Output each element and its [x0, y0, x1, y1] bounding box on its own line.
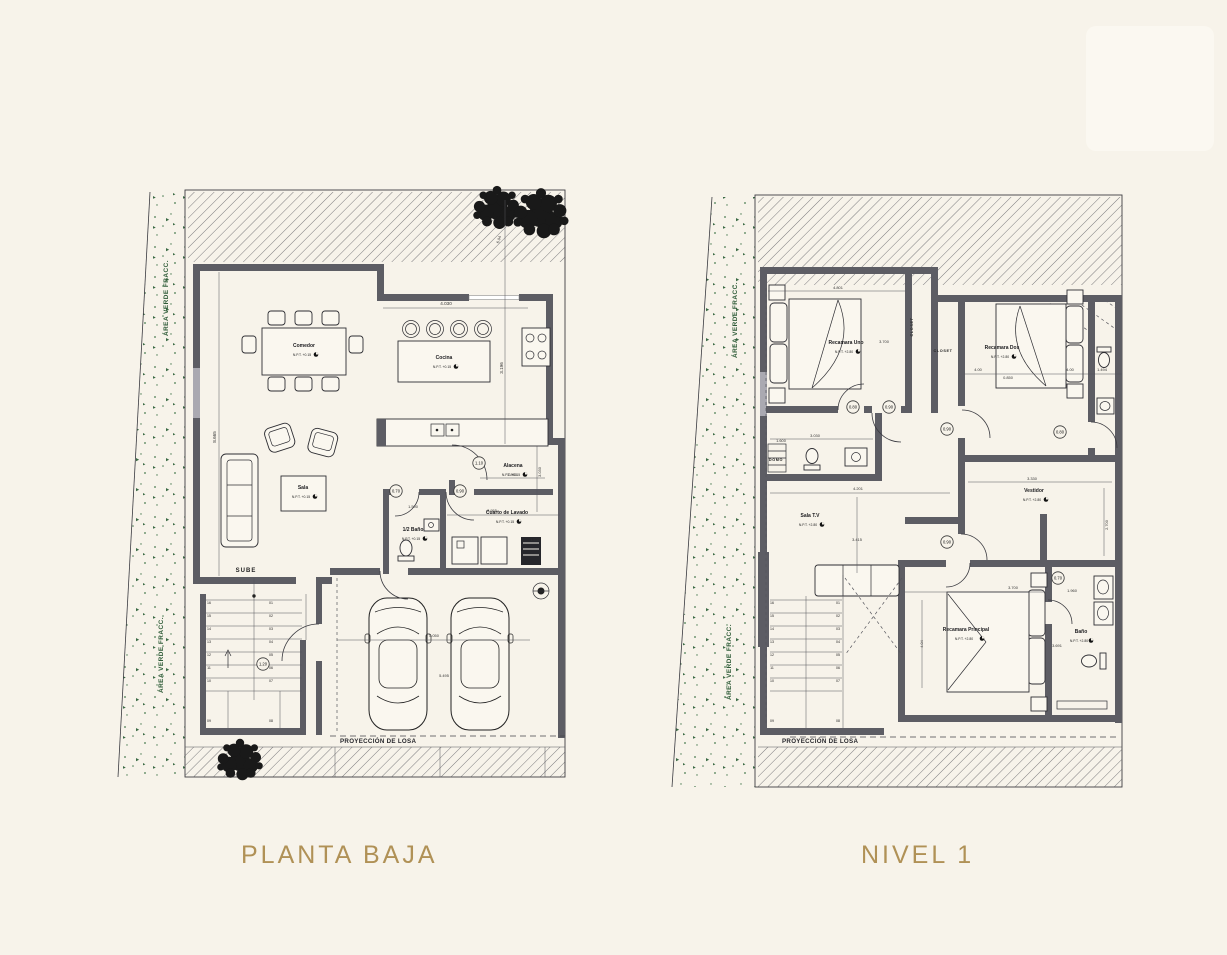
toilet	[398, 540, 414, 561]
svg-text:1.960: 1.960	[1067, 588, 1078, 593]
svg-text:16: 16	[207, 601, 211, 605]
room-label-half-bath: 1/2 Baño	[403, 527, 424, 533]
armchair	[307, 427, 340, 458]
svg-text:0.80: 0.80	[1056, 430, 1065, 435]
svg-text:0.80: 0.80	[849, 405, 858, 410]
sink	[845, 448, 867, 466]
svg-text:4.201: 4.201	[853, 486, 863, 491]
svg-text:0.90: 0.90	[456, 489, 465, 494]
sidewalk-hatch	[758, 747, 1122, 787]
window	[469, 296, 519, 300]
svg-text:10: 10	[770, 679, 774, 683]
green-area-strip: ÁREA VERDE FRACC. ÁREA VERDE FRACC.	[672, 197, 755, 787]
room-label-tv: Sala T.V	[801, 513, 821, 519]
svg-text:14: 14	[770, 627, 774, 631]
svg-text:N.P.T. +0.15: N.P.T. +0.15	[496, 520, 514, 524]
svg-text:12: 12	[770, 653, 774, 657]
washer-dryer	[452, 537, 507, 564]
plan-title-nivel-1: NIVEL 1	[861, 841, 974, 869]
door-size-tag: 0.70	[1052, 572, 1064, 584]
level-marker-icon	[314, 352, 319, 357]
svg-text:3.700: 3.700	[1008, 585, 1019, 590]
level-marker-icon	[980, 636, 985, 641]
level-marker-icon	[1089, 638, 1094, 643]
svg-text:1.600: 1.600	[776, 438, 787, 443]
svg-text:1.500: 1.500	[408, 504, 419, 509]
toilet	[1082, 653, 1107, 669]
room-label-kitchen: Cocina	[436, 355, 453, 361]
svg-text:12: 12	[207, 653, 211, 657]
svg-text:15: 15	[207, 614, 211, 618]
svg-text:15: 15	[770, 614, 774, 618]
car	[447, 598, 513, 730]
room-label-skylight: DOMO	[769, 458, 783, 462]
svg-text:3.691: 3.691	[1052, 643, 1062, 648]
svg-text:04: 04	[269, 640, 273, 644]
svg-text:1.10: 1.10	[475, 461, 484, 466]
sink	[1097, 398, 1114, 414]
svg-text:N.P.T. +2.80: N.P.T. +2.80	[991, 355, 1009, 359]
svg-text:2.700: 2.700	[1104, 519, 1109, 530]
svg-text:N.P.T. +2.80: N.P.T. +2.80	[799, 523, 817, 527]
room-label-master: Recamara Principal	[943, 627, 990, 633]
level-marker-icon	[856, 349, 861, 354]
svg-text:13: 13	[207, 640, 211, 644]
svg-text:N.P.T. +2.80: N.P.T. +2.80	[1070, 639, 1088, 643]
level-marker-icon	[313, 494, 318, 499]
svg-text:N.P.T. +0.15: N.P.T. +0.15	[502, 473, 520, 477]
site-label: ÁREA VERDE FRACC.	[156, 617, 165, 693]
svg-text:3.196: 3.196	[499, 362, 504, 374]
level-marker-icon	[1012, 354, 1017, 359]
staircase: SUBE 16151413121110 01020304050607 0908	[206, 568, 306, 728]
svg-text:11: 11	[207, 666, 211, 670]
svg-text:0.90: 0.90	[943, 427, 952, 432]
svg-text:07: 07	[269, 679, 273, 683]
floor-drain-icon	[533, 583, 549, 599]
dining-set	[242, 311, 363, 391]
svg-text:09: 09	[207, 719, 211, 723]
double-sink	[1094, 576, 1113, 625]
svg-text:N.P.T. +2.80: N.P.T. +2.80	[955, 637, 973, 641]
svg-text:10: 10	[207, 679, 211, 683]
svg-text:N.P.T. +2.80: N.P.T. +2.80	[835, 350, 853, 354]
watermark	[1086, 26, 1214, 151]
svg-text:1.530: 1.530	[530, 537, 541, 542]
bath-cabinet	[1057, 701, 1107, 709]
svg-text:4.00: 4.00	[974, 367, 982, 372]
room-label-living: Sala	[298, 485, 309, 491]
sink	[424, 519, 439, 531]
planta-baja-plan: ÁREA VERDE FRACC. ÁREA VERDE FRACC.	[118, 186, 569, 780]
svg-text:0.90: 0.90	[885, 405, 894, 410]
door-size-tag: 0.90	[941, 423, 953, 435]
svg-text:3.700: 3.700	[879, 339, 890, 344]
green-area-strip: ÁREA VERDE FRACC. ÁREA VERDE FRACC.	[118, 192, 185, 777]
site-label: ÁREA VERDE FRACC.	[161, 260, 170, 336]
svg-text:08: 08	[269, 719, 273, 723]
slab-label: PROYECCIÓN DE LOSA	[782, 737, 858, 745]
kitchen-island	[398, 321, 492, 383]
svg-text:3.415: 3.415	[852, 537, 862, 542]
svg-text:3.030: 3.030	[810, 433, 821, 438]
svg-text:N.P.T. +0.15: N.P.T. +0.15	[402, 537, 420, 541]
svg-text:06: 06	[836, 666, 840, 670]
dining-table	[262, 328, 346, 375]
svg-text:8.665: 8.665	[212, 431, 217, 443]
svg-text:4.04: 4.04	[919, 639, 924, 647]
svg-text:02: 02	[836, 614, 840, 618]
svg-text:03: 03	[269, 627, 273, 631]
door-size-tag: 0.70	[390, 485, 402, 497]
room-label-pantry: Alacena	[503, 463, 522, 469]
svg-text:13: 13	[770, 640, 774, 644]
room-label-bedroom-one: Recamara Uno	[828, 340, 863, 346]
svg-text:14: 14	[207, 627, 211, 631]
svg-text:5.495: 5.495	[439, 673, 449, 678]
svg-text:02: 02	[269, 614, 273, 618]
svg-text:09: 09	[770, 719, 774, 723]
svg-text:01: 01	[836, 601, 840, 605]
svg-text:16: 16	[770, 601, 774, 605]
level-marker-icon	[423, 536, 428, 541]
level-marker-icon	[1044, 497, 1049, 502]
door-size-tag: 0.90	[941, 536, 953, 548]
svg-text:08: 08	[836, 719, 840, 723]
door-size-tag: 1.10	[473, 457, 485, 469]
room-label-dressing: Vestidor	[1024, 488, 1044, 494]
level-marker-icon	[820, 522, 825, 527]
toilet	[1097, 347, 1111, 368]
svg-text:05: 05	[836, 653, 840, 657]
site-label: ÁREA VERDE FRACC.	[730, 282, 739, 358]
svg-text:04: 04	[836, 640, 840, 644]
svg-text:4.030: 4.030	[440, 301, 452, 306]
site-label: ÁREA VERDE FRACC.	[724, 624, 733, 700]
bed	[947, 573, 1047, 711]
car	[365, 598, 431, 730]
slab-label: PROYECCIÓN DE LOSA	[340, 737, 416, 745]
svg-text:03: 03	[836, 627, 840, 631]
level-marker-icon	[454, 364, 459, 369]
sofa	[221, 454, 258, 547]
svg-text:4.801: 4.801	[833, 285, 843, 290]
stairs-label: SUBE	[236, 568, 257, 574]
svg-text:0.850: 0.850	[1003, 375, 1014, 380]
svg-text:N.P.T. +2.80: N.P.T. +2.80	[1023, 498, 1041, 502]
toilet	[804, 449, 820, 471]
bed	[996, 290, 1083, 398]
stove	[522, 328, 550, 366]
svg-text:N.P.T. +0.15: N.P.T. +0.15	[292, 495, 310, 499]
svg-text:3.330: 3.330	[1027, 476, 1038, 481]
floor-plan-drawing: ÁREA VERDE FRACC. ÁREA VERDE FRACC.	[0, 0, 1227, 955]
door-size-tag: 0.80	[1054, 426, 1066, 438]
svg-text:05: 05	[269, 653, 273, 657]
svg-text:07: 07	[836, 679, 840, 683]
svg-text:N.P.T. +0.15: N.P.T. +0.15	[433, 365, 451, 369]
svg-text:0.70: 0.70	[392, 489, 401, 494]
svg-text:N.P.T. +0.15: N.P.T. +0.15	[293, 353, 311, 357]
staircase: 16151413121110 01020304050607 0908	[770, 575, 902, 728]
svg-text:5.050: 5.050	[429, 633, 440, 638]
armchair	[263, 422, 296, 454]
svg-text:1.494: 1.494	[1097, 367, 1108, 372]
svg-text:0.70: 0.70	[1054, 576, 1063, 581]
svg-text:4.00: 4.00	[1066, 367, 1074, 372]
door-size-tag: 0.90	[883, 401, 895, 413]
room-label-bedroom-two: Recamara Dos	[985, 345, 1020, 351]
nivel-1-plan: ÁREA VERDE FRACC. ÁREA VERDE FRACC.	[672, 195, 1122, 787]
kitchen-counter	[377, 419, 548, 446]
svg-text:3.030: 3.030	[537, 466, 542, 477]
room-label-laundry: Cuarto de Lavado	[486, 510, 528, 516]
coffee-table	[281, 476, 326, 511]
room-label-bath: Baño	[1075, 629, 1088, 635]
svg-text:01: 01	[269, 601, 273, 605]
door-size-tag: 0.90	[454, 485, 466, 497]
svg-text:1.20: 1.20	[259, 662, 268, 667]
svg-text:11: 11	[770, 666, 774, 670]
level-marker-icon	[523, 472, 528, 477]
room-label-dining: Comedor	[293, 343, 315, 349]
svg-text:06: 06	[269, 666, 273, 670]
level-marker-icon	[517, 519, 522, 524]
room-label-closet: CLOSET	[910, 317, 914, 336]
room-label-closet: CLOSET	[934, 349, 953, 353]
plan-title-planta-baja: PLANTA BAJA	[241, 841, 438, 869]
door-size-tag: 0.80	[847, 401, 859, 413]
svg-text:0.90: 0.90	[943, 540, 952, 545]
door-size-tag: 1.20	[257, 658, 269, 670]
